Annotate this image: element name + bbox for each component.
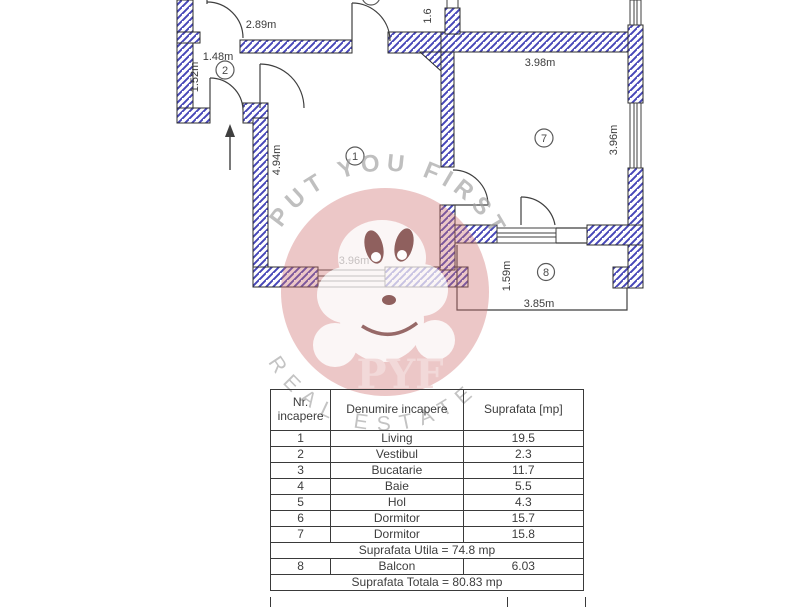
dimension-label: 3.96m [339,255,370,267]
room-number: 2 [222,65,228,77]
door-arc-icon [260,64,304,108]
wall-segment [240,40,352,53]
header-denumire: Denumire incapere [331,390,463,431]
dimension-label: 1.52m [189,62,201,93]
suprafata-utila-row: Suprafata Utila = 74.8 mp [271,543,584,559]
wall-fillet [420,52,441,71]
wall-segment [385,267,468,287]
dimension-label: 1.48m [203,51,234,63]
window-icon [630,103,641,168]
next-table-cutoff [270,597,586,607]
wall-segment [177,108,210,123]
table-row: 8 Balcon 6.03 [271,559,584,575]
table-row: 3 Bucatarie 11.7 [271,463,584,479]
room-areas-table: Nr. incapere Denumire incapere Suprafata… [270,389,584,591]
cut-edge-lines [447,0,458,8]
door-arc-icon [210,78,243,110]
wall-segment [177,32,200,43]
floor-plan-page: { "plan": { "labels": { "dim_289": "2.89… [0,0,800,600]
dimension-label: 3.85m [524,298,555,310]
wall-segment [445,8,460,34]
table-row: 2 Vestibul 2.3 [271,447,584,463]
wall-segment [628,168,643,226]
wall-segment [177,0,193,123]
table-row: 1 Living 19.5 [271,431,584,447]
wall-segment [441,52,454,167]
dimension-label: 4.94m [271,145,283,176]
door-arc-icon [352,3,390,41]
dimension-label: 1.59m [501,261,513,292]
window-icon [630,0,641,25]
room-number: 8 [543,267,549,279]
wall-segment [628,245,643,288]
room-number-badge-cut [362,0,380,5]
entrance-arrow-icon [225,124,235,170]
table-row: 5 Hol 4.3 [271,495,584,511]
dimension-label: 3.96m [608,125,620,156]
next-table-divider [507,597,508,607]
wall-segment [587,225,643,245]
room-number: 7 [541,133,547,145]
table-row: 7 Dormitor 15.8 [271,527,584,543]
dimension-label: 2.89m [246,19,277,31]
window-icon [318,270,385,287]
wall-segment [253,118,268,287]
wall-segment [253,267,318,287]
walls [177,0,643,288]
wall-segment [388,32,441,53]
header-nr-incapere: Nr. incapere [271,390,331,431]
table-row: 6 Dormitor 15.7 [271,511,584,527]
wall-segment [455,225,497,243]
wall-segment [440,205,455,270]
table-row: 4 Baie 5.5 [271,479,584,495]
door-arc-icon [453,170,488,205]
dimension-label: 1.6 [422,8,434,23]
header-suprafata: Suprafata [mp] [463,390,583,431]
wall-segment [613,267,628,288]
room-number: 1 [352,151,358,163]
wall-segment [441,32,628,52]
table-header-row: Nr. incapere Denumire incapere Suprafata… [271,390,584,431]
door-arc-icon [207,0,243,38]
door-arc-icon [521,197,555,225]
window-icon [497,228,556,243]
dimension-label: 3.98m [525,57,556,69]
wall-segment [628,25,643,103]
suprafata-totala-row: Suprafata Totala = 80.83 mp [271,575,584,591]
